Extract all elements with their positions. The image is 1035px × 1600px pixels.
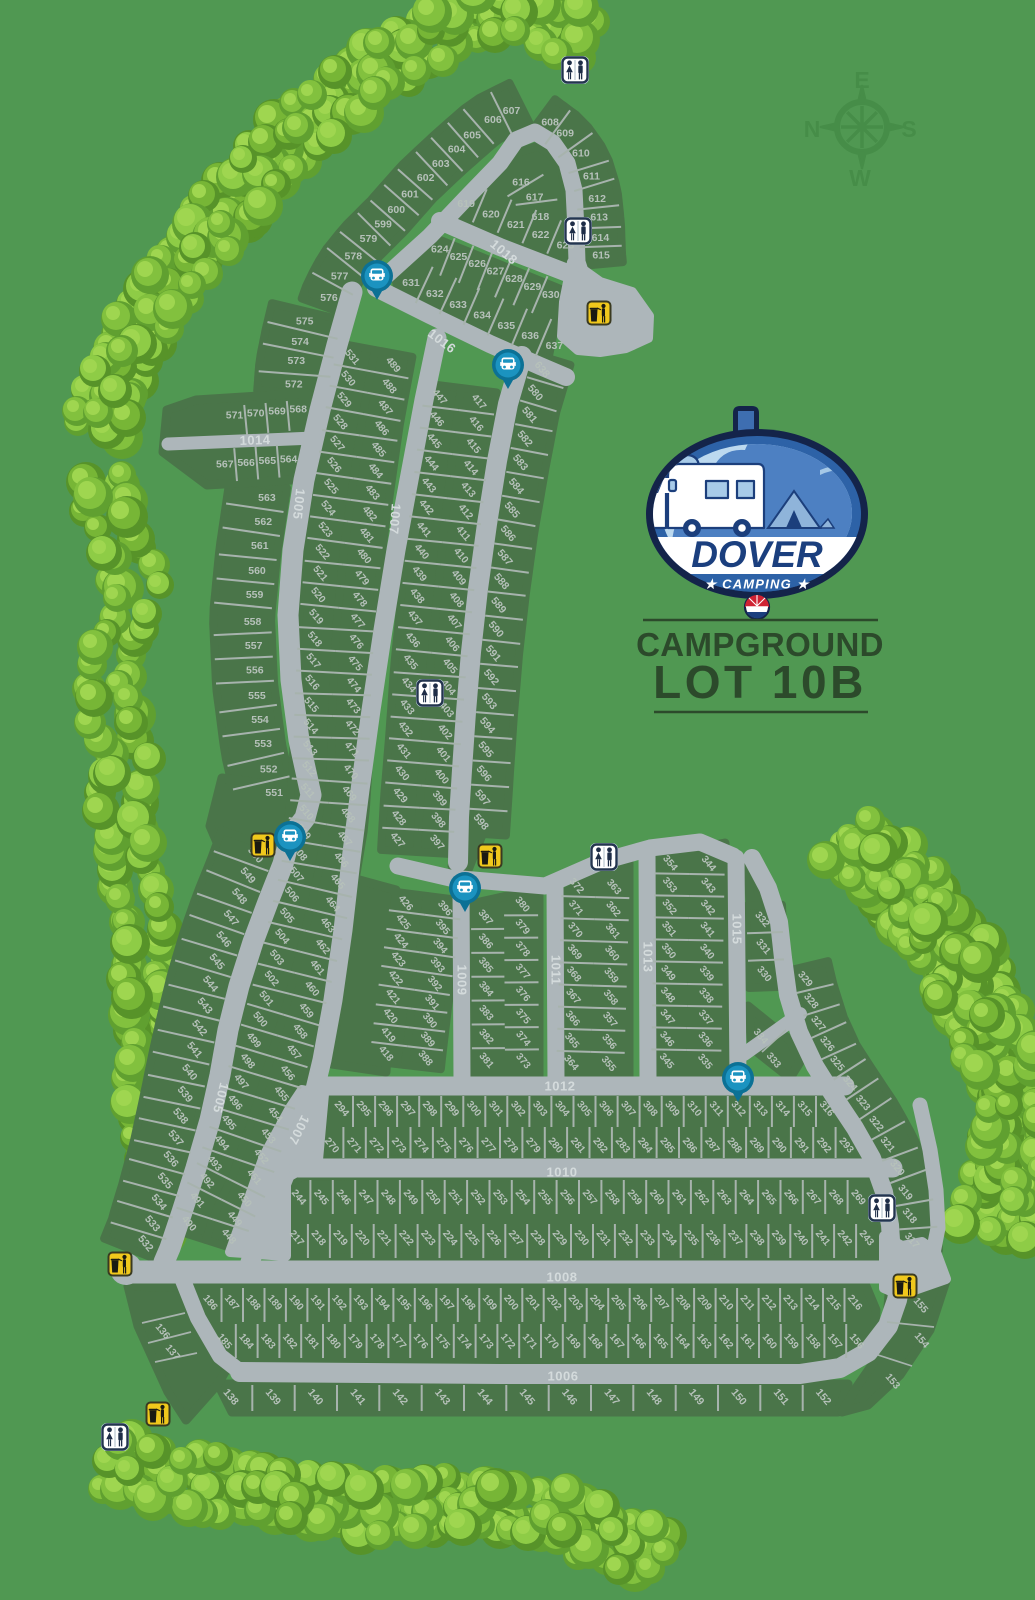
svg-text:W: W <box>849 165 871 191</box>
svg-text:1010: 1010 <box>547 1165 578 1180</box>
svg-text:552: 552 <box>260 764 278 776</box>
svg-text:1011: 1011 <box>549 955 564 985</box>
svg-text:622: 622 <box>532 229 550 241</box>
svg-text:567: 567 <box>216 459 234 471</box>
svg-text:★ CAMPING ★: ★ CAMPING ★ <box>704 577 810 592</box>
svg-text:1014: 1014 <box>239 432 271 448</box>
svg-text:634: 634 <box>473 309 491 321</box>
svg-text:556: 556 <box>246 664 264 676</box>
svg-text:609: 609 <box>556 128 574 140</box>
svg-text:558: 558 <box>244 616 262 628</box>
svg-text:636: 636 <box>521 330 539 342</box>
svg-text:S: S <box>901 116 916 142</box>
svg-text:626: 626 <box>468 258 486 270</box>
svg-text:619: 619 <box>457 198 475 210</box>
svg-text:625: 625 <box>450 251 468 263</box>
svg-text:553: 553 <box>254 738 272 750</box>
svg-text:599: 599 <box>374 218 392 230</box>
svg-text:1015: 1015 <box>730 914 745 945</box>
svg-text:630: 630 <box>542 289 560 301</box>
svg-text:632: 632 <box>426 288 444 300</box>
svg-text:572: 572 <box>285 378 303 390</box>
svg-text:624: 624 <box>431 244 449 256</box>
svg-text:620: 620 <box>482 208 500 220</box>
svg-text:601: 601 <box>401 189 419 201</box>
svg-text:564: 564 <box>280 453 298 465</box>
svg-text:633: 633 <box>449 299 467 311</box>
svg-text:570: 570 <box>247 408 265 420</box>
svg-text:613: 613 <box>590 212 608 224</box>
svg-text:637: 637 <box>546 340 564 352</box>
svg-text:554: 554 <box>251 714 269 726</box>
svg-text:635: 635 <box>498 320 516 332</box>
svg-text:555: 555 <box>248 690 266 702</box>
svg-text:E: E <box>854 67 869 93</box>
svg-text:LOT 10B: LOT 10B <box>653 656 867 708</box>
svg-text:574: 574 <box>291 336 309 348</box>
svg-text:607: 607 <box>503 105 521 117</box>
svg-text:571: 571 <box>226 410 244 422</box>
svg-text:566: 566 <box>237 457 255 469</box>
svg-text:561: 561 <box>251 540 269 552</box>
svg-text:DOVER: DOVER <box>691 534 823 575</box>
svg-text:616: 616 <box>512 176 530 188</box>
svg-text:600: 600 <box>388 204 406 216</box>
svg-text:579: 579 <box>360 233 378 245</box>
svg-text:569: 569 <box>268 406 286 418</box>
svg-text:576: 576 <box>320 292 338 304</box>
svg-text:563: 563 <box>258 492 276 504</box>
svg-text:565: 565 <box>259 455 277 467</box>
svg-text:573: 573 <box>288 355 306 367</box>
svg-text:615: 615 <box>592 249 610 261</box>
svg-text:610: 610 <box>572 148 590 160</box>
svg-text:1009: 1009 <box>455 965 470 996</box>
svg-text:602: 602 <box>417 172 435 184</box>
svg-text:1013: 1013 <box>641 942 656 973</box>
svg-text:1007: 1007 <box>386 503 404 535</box>
svg-text:551: 551 <box>265 787 283 799</box>
svg-text:575: 575 <box>296 316 314 328</box>
svg-text:612: 612 <box>588 193 606 205</box>
svg-text:578: 578 <box>345 250 363 262</box>
svg-text:628: 628 <box>505 273 523 285</box>
svg-text:557: 557 <box>245 640 263 652</box>
svg-text:614: 614 <box>592 232 610 244</box>
svg-text:1006: 1006 <box>548 1369 579 1384</box>
svg-text:606: 606 <box>484 114 502 126</box>
svg-text:562: 562 <box>255 516 273 528</box>
svg-text:617: 617 <box>526 191 544 203</box>
svg-text:1008: 1008 <box>547 1270 578 1285</box>
svg-text:627: 627 <box>487 265 505 277</box>
svg-text:629: 629 <box>524 281 542 293</box>
svg-text:568: 568 <box>289 404 307 416</box>
svg-text:604: 604 <box>448 143 466 155</box>
svg-text:608: 608 <box>541 116 559 128</box>
svg-text:N: N <box>804 116 821 142</box>
svg-text:605: 605 <box>463 130 481 142</box>
svg-text:603: 603 <box>432 158 450 170</box>
svg-text:631: 631 <box>402 277 420 289</box>
svg-text:559: 559 <box>246 589 264 601</box>
svg-text:611: 611 <box>583 171 600 183</box>
svg-text:577: 577 <box>331 271 349 283</box>
svg-text:1012: 1012 <box>545 1079 576 1094</box>
svg-text:621: 621 <box>507 219 525 231</box>
svg-text:560: 560 <box>248 565 266 577</box>
